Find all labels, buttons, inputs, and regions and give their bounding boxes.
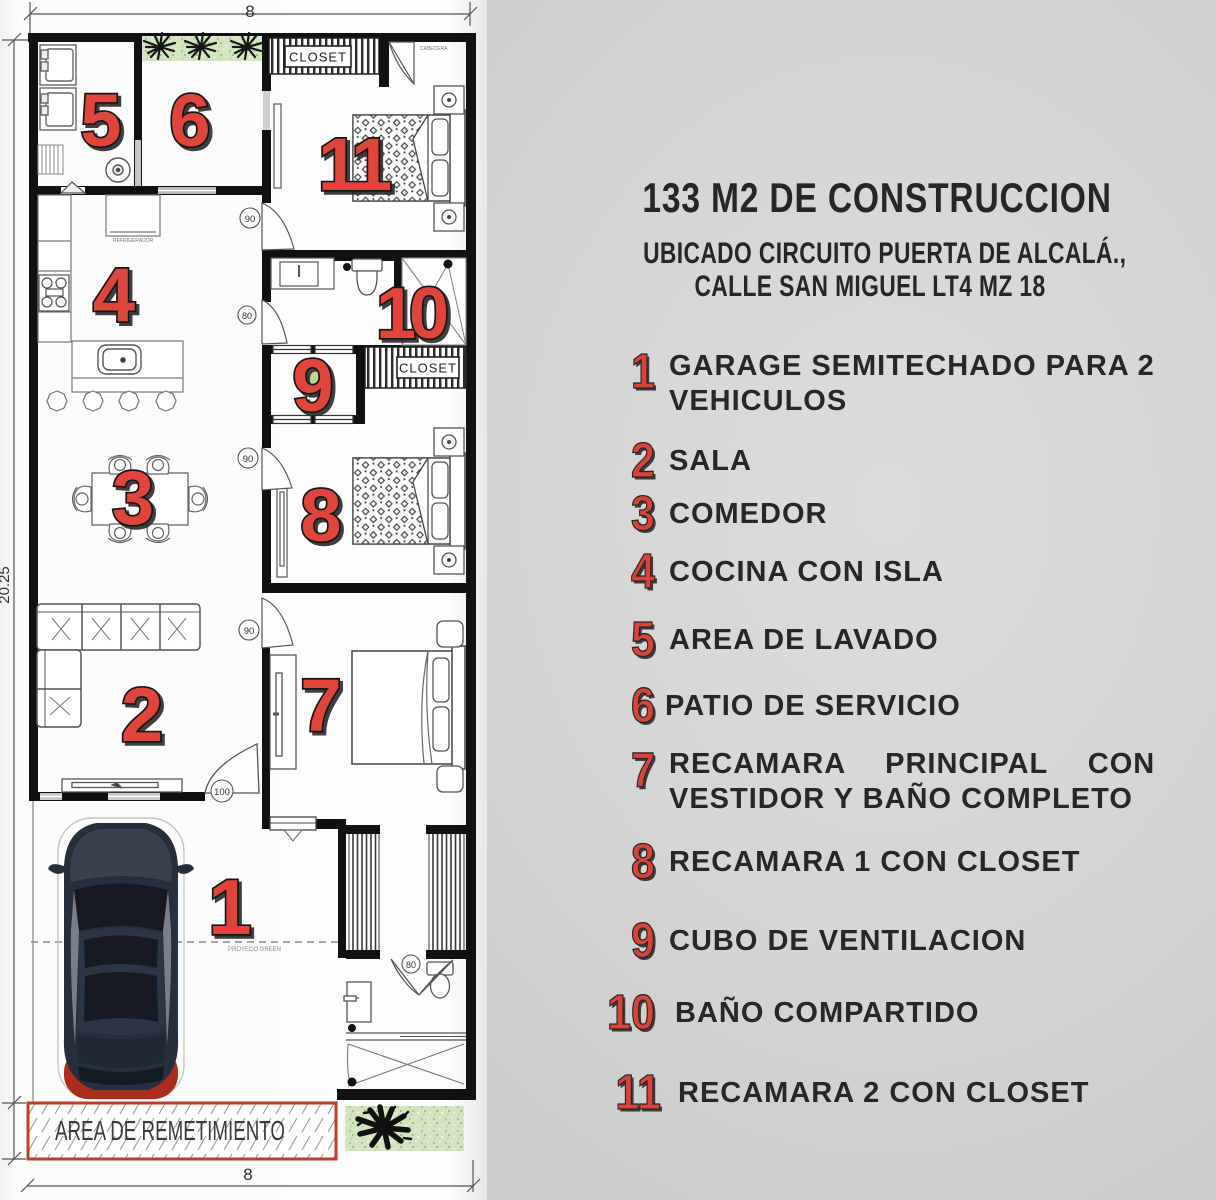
svg-text:3: 3 [112,456,154,541]
svg-text:4: 4 [93,253,135,338]
svg-text:CABECERA: CABECERA [420,46,448,52]
svg-text:8: 8 [300,474,341,557]
svg-text:90: 90 [245,214,256,225]
svg-text:1: 1 [208,863,251,951]
svg-text:20.25: 20.25 [0,566,13,604]
svg-text:90: 90 [244,626,255,637]
svg-text:5: 5 [80,79,121,162]
svg-text:80: 80 [242,311,252,321]
svg-text:80: 80 [406,960,416,970]
svg-text:9: 9 [292,344,333,427]
svg-text:90: 90 [243,454,254,465]
svg-text:8: 8 [243,1165,252,1184]
svg-text:6: 6 [169,79,210,162]
svg-text:11: 11 [318,123,391,206]
svg-text:7: 7 [300,664,341,747]
svg-text:100: 100 [214,787,230,798]
svg-text:AREA DE REMETIMIENTO: AREA DE REMETIMIENTO [55,1115,285,1147]
svg-text:CLOSET: CLOSET [399,361,457,376]
svg-text:REFRIGERADOR: REFRIGERADOR [113,238,154,244]
svg-text:CLOSET: CLOSET [289,50,347,65]
svg-text:10: 10 [376,274,447,354]
svg-text:2: 2 [121,673,163,758]
svg-text:8: 8 [245,2,254,21]
